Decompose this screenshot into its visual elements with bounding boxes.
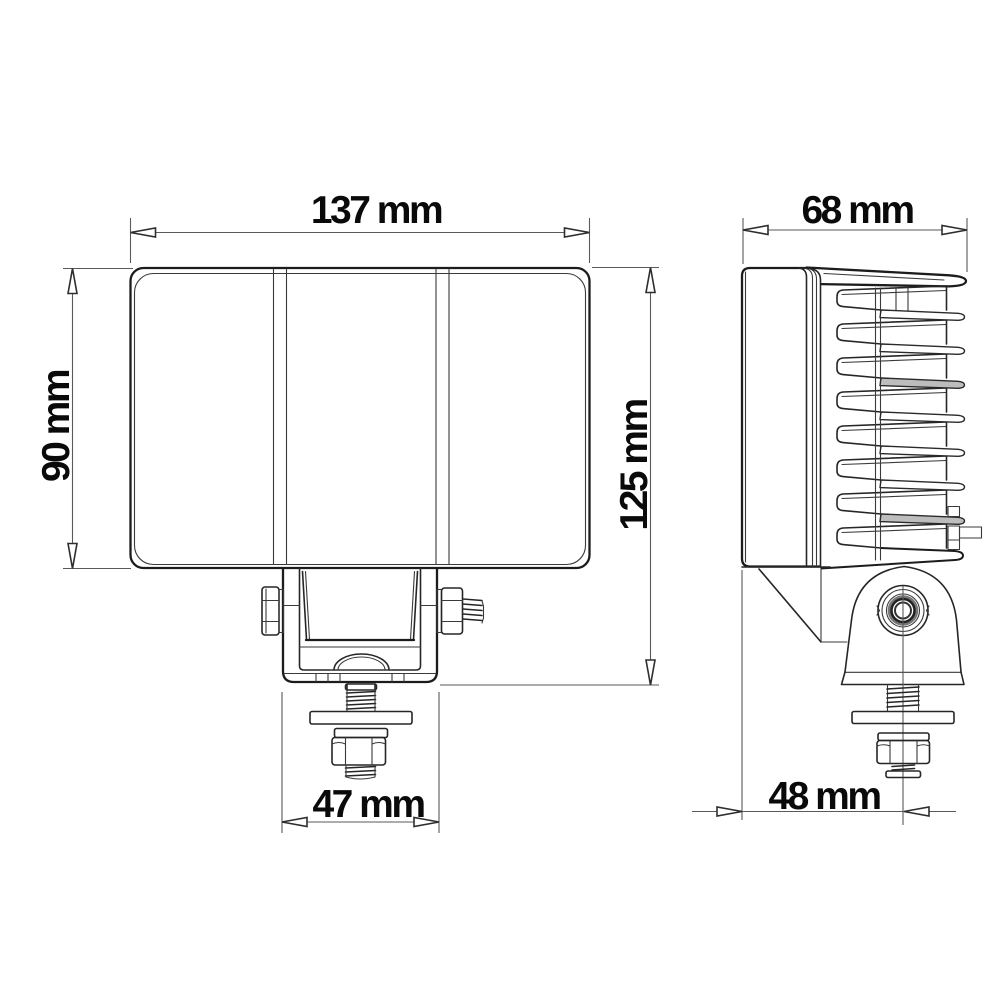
svg-text:47 mm: 47 mm	[312, 783, 424, 826]
svg-text:48 mm: 48 mm	[768, 775, 880, 818]
svg-text:125 mm: 125 mm	[613, 400, 656, 531]
svg-text:68 mm: 68 mm	[801, 189, 913, 232]
svg-text:90 mm: 90 mm	[35, 370, 78, 482]
svg-text:137 mm: 137 mm	[311, 189, 442, 232]
